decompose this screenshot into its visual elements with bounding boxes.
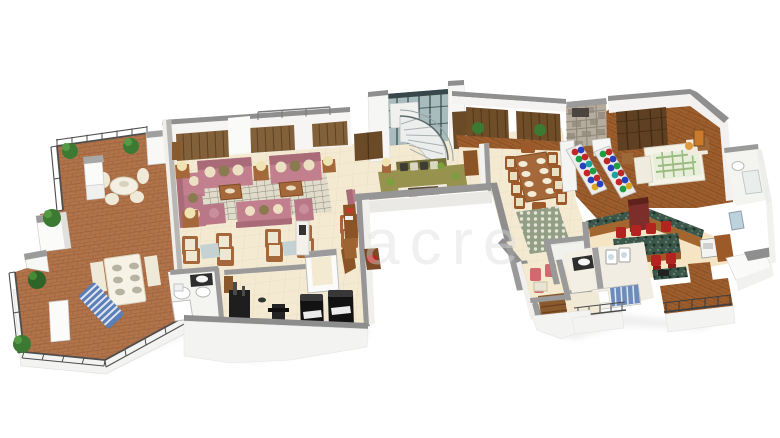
- svg-text:acre: acre: [364, 206, 529, 278]
